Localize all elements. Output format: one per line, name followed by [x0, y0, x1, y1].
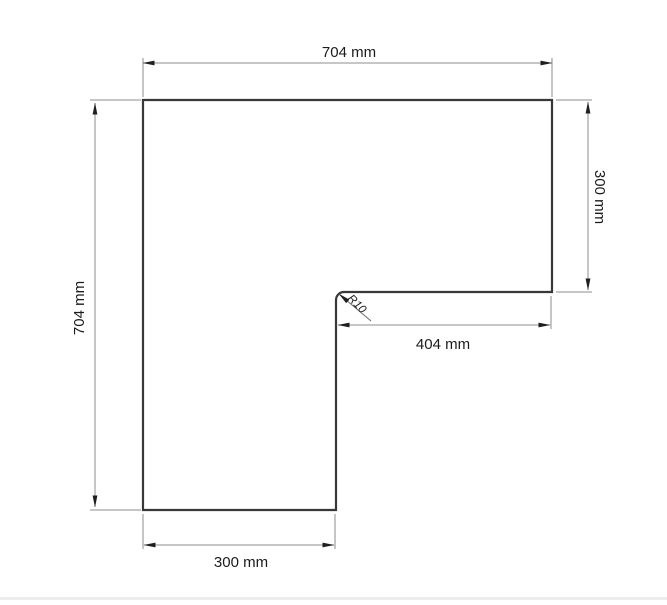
radius-label: R10 — [345, 293, 369, 317]
dimension-label-left: 704 mm — [71, 281, 88, 335]
dimension-left-height: 704 mm — [71, 100, 141, 510]
dimension-label-right: 300 mm — [591, 170, 608, 224]
dimension-label-bottom: 300 mm — [214, 554, 268, 571]
part-outline — [143, 100, 552, 510]
dimension-bottom-width: 300 mm — [143, 514, 335, 571]
dimension-right-depth: 300 mm — [556, 100, 608, 292]
dimension-top-width: 704 mm — [143, 44, 552, 97]
technical-drawing: 704 mm 300 mm 404 mm 300 mm 704 mm — [0, 0, 667, 600]
dimension-inner-width: 404 mm — [338, 296, 551, 353]
drawing-canvas: 704 mm 300 mm 404 mm 300 mm 704 mm — [0, 0, 667, 600]
dimension-label-top: 704 mm — [322, 44, 376, 61]
radius-callout: R10 — [339, 293, 371, 321]
dimension-label-inner: 404 mm — [416, 336, 470, 353]
